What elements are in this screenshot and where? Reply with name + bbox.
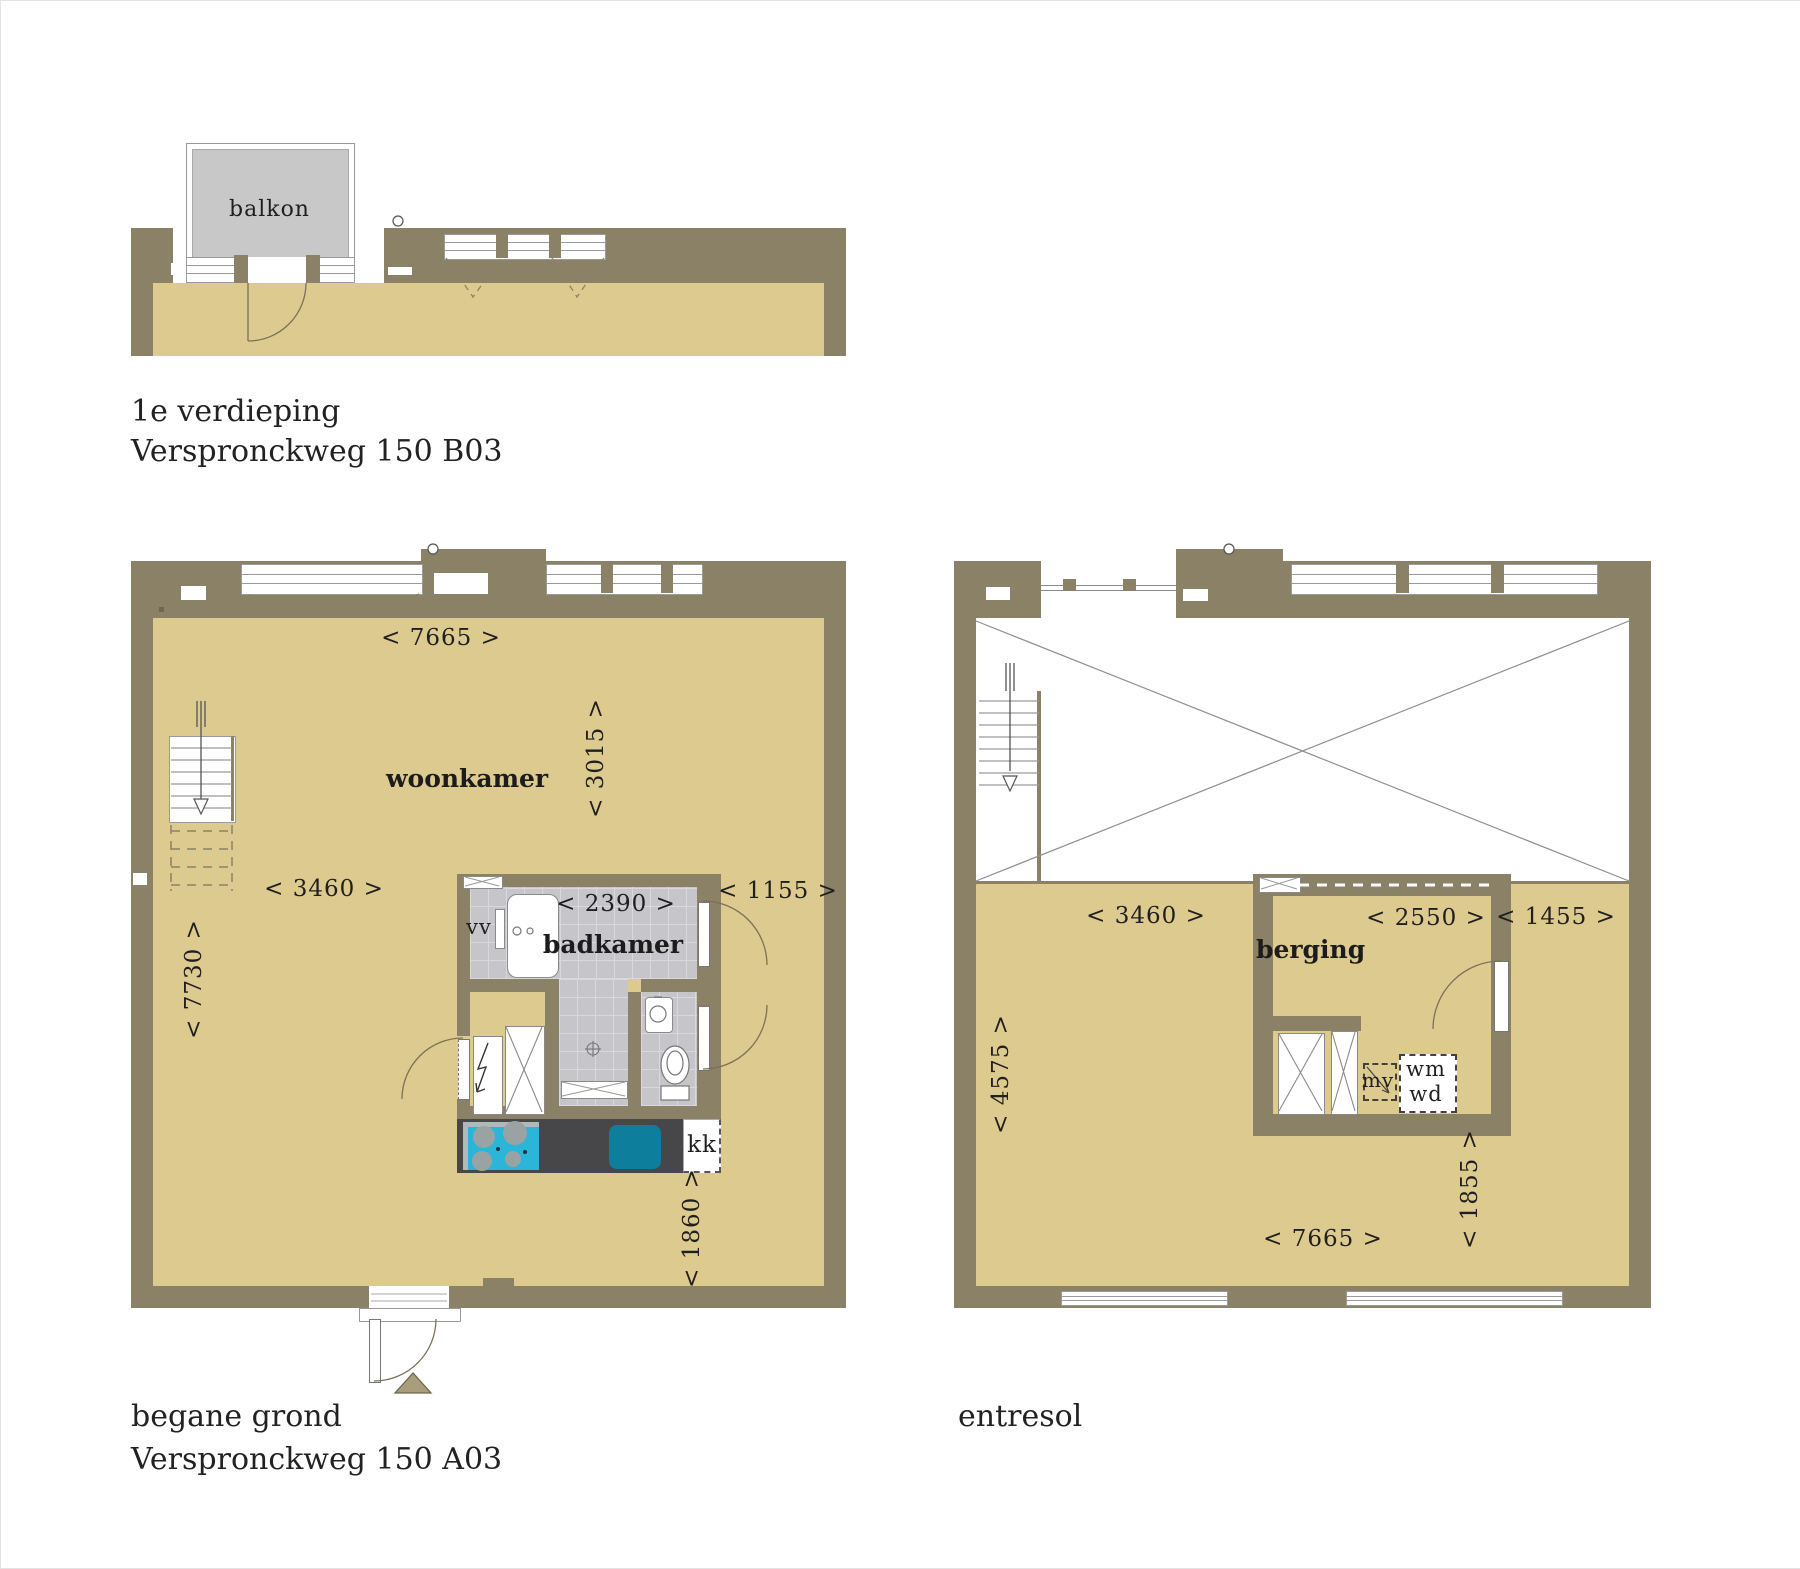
- storage-door-leaf: [1494, 961, 1509, 1032]
- entrance-door-leaf: [369, 1319, 381, 1383]
- dim-left-height: < 4575 >: [988, 999, 1014, 1149]
- bathroom-label: badkamer: [533, 930, 693, 959]
- railing-line: [1041, 590, 1176, 591]
- floor-strip: [153, 283, 824, 356]
- railing-tab: [1063, 579, 1076, 591]
- void-edge: [976, 881, 1253, 884]
- dim-right-lower: < 1855 >: [1457, 1114, 1483, 1264]
- dim-upper-right: < 3015 >: [583, 683, 609, 833]
- kitchen-sink: [609, 1125, 661, 1169]
- plan-title: 1e verdieping: [131, 394, 340, 429]
- wall-notch: [1183, 589, 1208, 601]
- dim-kitchen: < 1860 >: [679, 1153, 705, 1303]
- window: [1291, 564, 1598, 595]
- vv-label: vv: [465, 915, 493, 939]
- void-edge: [1511, 881, 1629, 884]
- wm-label: wm: [1399, 1057, 1453, 1081]
- storage-label: berging: [1256, 935, 1396, 964]
- plan-address: Verspronckweg 150 B03: [131, 434, 503, 469]
- stairs-rail: [1037, 691, 1041, 884]
- mv-label: mv: [1361, 1068, 1395, 1092]
- wd-label: wd: [1399, 1082, 1453, 1106]
- window: [1346, 1291, 1563, 1306]
- wall-notch: [171, 263, 187, 275]
- wall-bump: [483, 1278, 514, 1286]
- void: [976, 618, 1629, 884]
- plan-title: begane grond: [131, 1399, 342, 1434]
- closet-x: [505, 1026, 545, 1115]
- window-mullion: [601, 564, 613, 593]
- niche-shelf: [1259, 877, 1301, 893]
- dim-corridor: < 1155 >: [703, 878, 853, 904]
- dim-bottom-width: < 7665 >: [1248, 1226, 1398, 1252]
- dim-top-width: < 7665 >: [366, 625, 516, 651]
- wall-left: [954, 561, 976, 1308]
- wall-left: [131, 283, 153, 356]
- dim-corridor: < 1455 >: [1481, 904, 1631, 930]
- dim-bathroom: < 2390 >: [541, 891, 691, 917]
- bathroom-door-leaf: [698, 902, 710, 967]
- wall-slot: [388, 267, 412, 275]
- door-jamb: [234, 255, 248, 283]
- partition: [641, 979, 697, 992]
- closet-x: [1278, 1033, 1325, 1115]
- wall-top-left-block: [131, 228, 173, 283]
- wall-center-block: [1176, 549, 1283, 618]
- storage-wall-left: [1253, 874, 1273, 1134]
- washbasin: [645, 997, 673, 1033]
- dim-mid-width: < 3460 >: [249, 876, 399, 902]
- window-mullion: [1396, 564, 1409, 593]
- meter-door-leaf: [458, 1039, 470, 1100]
- wall-right: [824, 561, 846, 1308]
- storage-nook-wall: [1273, 1016, 1361, 1031]
- wall-right: [1629, 561, 1651, 1308]
- hob: [463, 1122, 539, 1170]
- entrance-triangle: [395, 1373, 431, 1393]
- closet-x: [1331, 1031, 1358, 1115]
- stairs: [169, 736, 236, 823]
- window-mullion: [661, 564, 673, 593]
- dim-left-height: < 7730 >: [181, 904, 207, 1054]
- niche-shelf: [463, 876, 503, 889]
- meter-panel: [473, 1036, 503, 1115]
- balcony-label: balkon: [192, 197, 347, 222]
- window-mullion: [496, 234, 508, 258]
- partition: [470, 979, 559, 992]
- wall-notch: [986, 587, 1010, 600]
- plan-address: Verspronckweg 150 A03: [131, 1442, 502, 1477]
- wall-right: [824, 283, 846, 356]
- partition: [545, 992, 559, 1106]
- wall-notch: [133, 873, 147, 885]
- vv-unit: [495, 909, 505, 949]
- partition: [628, 992, 641, 1106]
- window-mullion: [1491, 564, 1504, 593]
- stairs-rail: [231, 736, 234, 821]
- dim-storage: < 2550 >: [1351, 905, 1501, 931]
- core-wall-left: [457, 874, 470, 1036]
- window: [444, 234, 606, 260]
- window: [241, 564, 423, 595]
- balcony-door-gap: [248, 257, 306, 283]
- plan-title: entresol: [958, 1399, 1082, 1434]
- wall-left: [131, 561, 153, 1308]
- entrance-gap: [369, 1286, 449, 1308]
- wall-notch: [434, 573, 488, 594]
- wall-dot: [159, 607, 164, 612]
- floorplan-sheet: balkon 1e verdieping Verspronckweg 150 B…: [0, 0, 1800, 1569]
- window: [1061, 1291, 1228, 1306]
- shower-screen: [561, 1081, 628, 1099]
- living-room-label: woonkamer: [386, 764, 546, 793]
- wall-notch: [181, 586, 206, 600]
- door-jamb: [306, 255, 320, 283]
- railing-tab: [1123, 579, 1136, 591]
- window: [546, 564, 703, 595]
- window-mullion: [549, 234, 561, 258]
- railing-line: [1041, 585, 1176, 586]
- toilet-door-leaf: [698, 1006, 710, 1071]
- wall-bottom: [131, 1286, 846, 1308]
- dim-floor-width: < 3460 >: [1071, 903, 1221, 929]
